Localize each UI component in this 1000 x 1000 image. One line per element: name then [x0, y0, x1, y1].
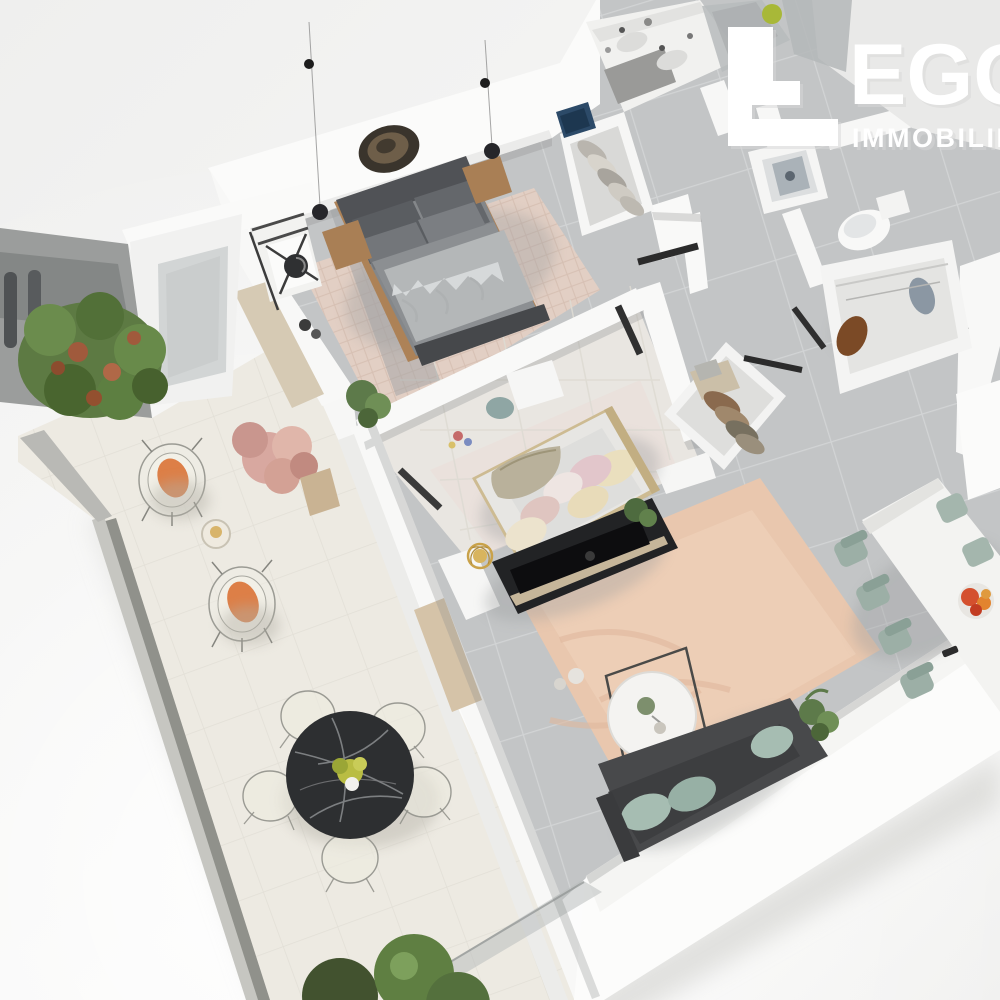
svg-text:IMMOBILIER: IMMOBILIER: [852, 123, 1000, 153]
svg-text:EGG: EGG: [849, 27, 1000, 123]
